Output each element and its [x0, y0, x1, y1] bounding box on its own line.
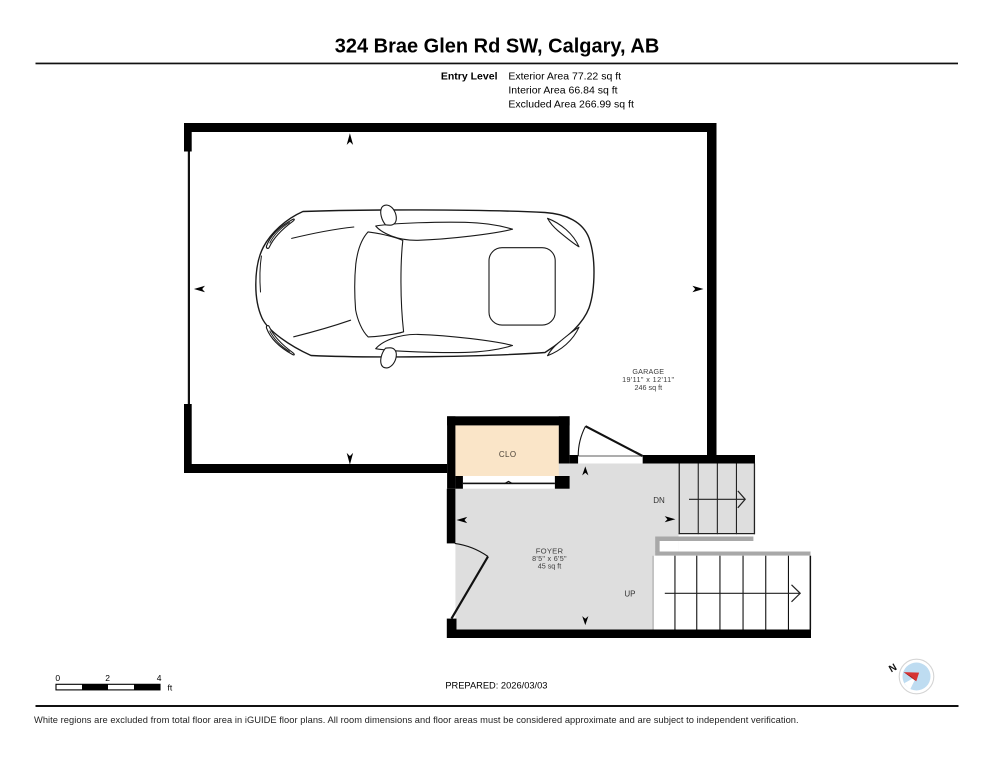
svg-text:246 sq ft: 246 sq ft	[635, 383, 663, 392]
svg-text:Exterior Area 77.22 sq ft: Exterior Area 77.22 sq ft	[508, 70, 621, 82]
svg-text:DN: DN	[653, 496, 665, 505]
svg-text:N: N	[887, 662, 899, 675]
svg-text:CLO: CLO	[499, 450, 517, 459]
svg-text:PREPARED: 2026/03/03: PREPARED: 2026/03/03	[445, 681, 547, 691]
svg-text:0: 0	[55, 673, 60, 683]
svg-text:UP: UP	[624, 589, 635, 598]
svg-text:ft: ft	[168, 683, 173, 693]
svg-text:Entry Level: Entry Level	[441, 70, 498, 82]
svg-text:Interior Area 66.84 sq ft: Interior Area 66.84 sq ft	[508, 84, 617, 96]
svg-text:324 Brae Glen Rd SW, Calgary,: 324 Brae Glen Rd SW, Calgary, AB	[335, 36, 660, 58]
svg-text:45 sq ft: 45 sq ft	[538, 562, 562, 571]
svg-text:4: 4	[157, 673, 162, 683]
svg-text:Excluded Area 266.99 sq ft: Excluded Area 266.99 sq ft	[508, 99, 634, 111]
svg-text:White regions are excluded fro: White regions are excluded from total fl…	[34, 715, 799, 725]
svg-text:2: 2	[105, 673, 110, 683]
